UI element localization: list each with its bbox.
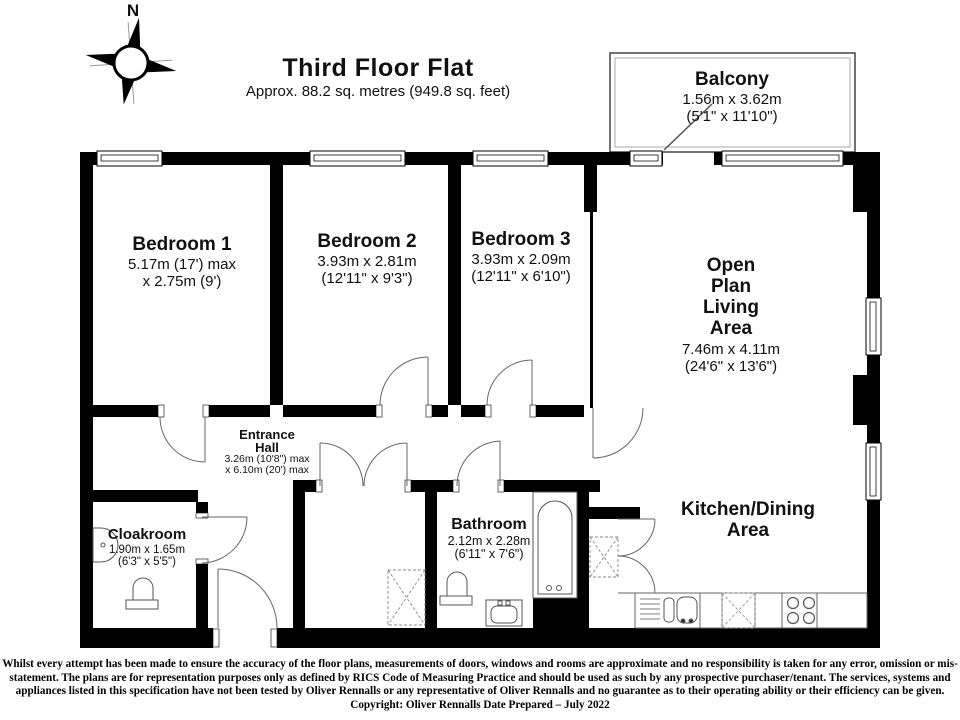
windows bbox=[97, 151, 881, 500]
disclaimer-text: Whilst every attempt has been made to en… bbox=[2, 658, 958, 712]
plan-title: Third Floor Flat bbox=[282, 55, 473, 81]
bathroom-sink bbox=[486, 600, 522, 626]
walls bbox=[80, 152, 880, 648]
compass-icon bbox=[78, 10, 184, 113]
floor-plan-page: N Third Floor Flat Approx. 88.2 sq. metr… bbox=[0, 0, 960, 720]
compass-north-label: N bbox=[127, 2, 139, 20]
floor-plan-graphic bbox=[0, 0, 960, 720]
bath-tub bbox=[533, 492, 577, 598]
plan-area: Approx. 88.2 sq. metres (949.8 sq. feet) bbox=[246, 84, 510, 100]
cloakroom-toilet bbox=[126, 578, 158, 609]
bathroom-toilet bbox=[440, 572, 472, 605]
